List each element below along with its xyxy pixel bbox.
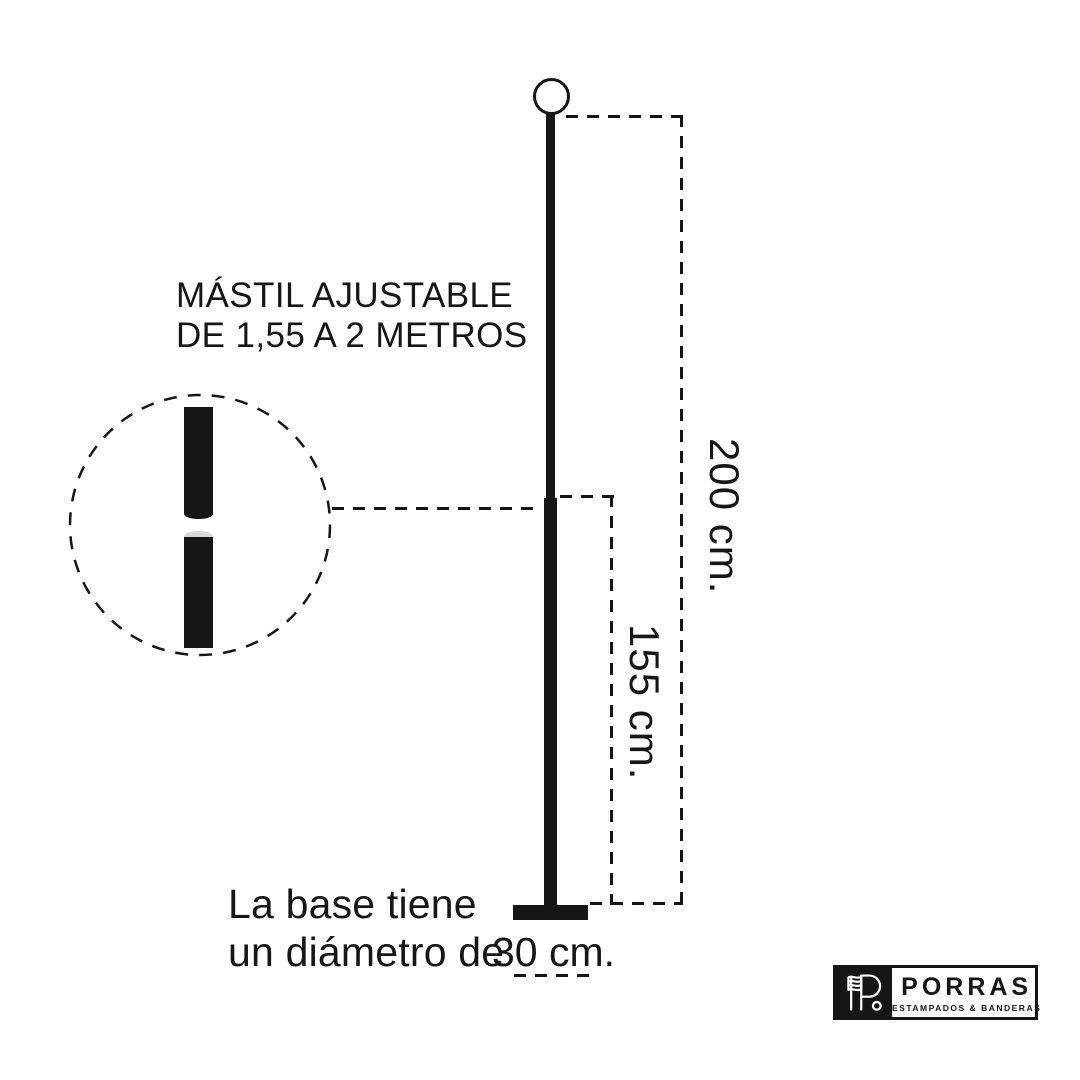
dim-200-top-line: [566, 115, 683, 118]
mast-adjustable-label-line1: MÁSTIL AJUSTABLE: [176, 276, 528, 316]
pole-lower-section: [544, 498, 557, 905]
base-caption-line2: un diámetro de: [228, 928, 504, 976]
brand-logo-mark: [836, 968, 892, 1017]
brand-name: PORRAS: [901, 975, 1032, 1000]
detail-connector-line: [332, 507, 542, 510]
brand-tagline: ESTAMPADOS & BANDERAS: [892, 1004, 1041, 1013]
mast-adjustable-label: MÁSTIL AJUSTABLE DE 1,55 A 2 METROS: [176, 276, 528, 356]
mast-adjustable-label-line2: DE 1,55 A 2 METROS: [176, 316, 528, 356]
base-diameter-dash-line: [514, 974, 591, 977]
brand-logo: PORRAS ESTAMPADOS & BANDERAS: [833, 965, 1038, 1020]
base-caption: La base tiene un diámetro de: [228, 880, 504, 976]
dim-155-label: 155 cm.: [620, 624, 668, 780]
base-caption-line1: La base tiene: [228, 880, 504, 928]
dim-200-bottom-line: [590, 902, 683, 905]
dim-200-label: 200 cm.: [700, 438, 748, 594]
detail-pole-lower-segment: [184, 537, 213, 648]
dim-155-top-line: [560, 495, 614, 498]
brand-text-block: PORRAS ESTAMPADOS & BANDERAS: [892, 968, 1041, 1017]
dim-200-vertical-line: [680, 115, 683, 905]
infographic-canvas: MÁSTIL AJUSTABLE DE 1,55 A 2 METROS 200 …: [0, 0, 1080, 1080]
porras-flag-p-icon: [842, 971, 886, 1015]
dim-155-vertical-line: [610, 495, 613, 905]
pole-base: [513, 905, 588, 920]
pole-upper-section: [546, 113, 555, 498]
pole-finial-ball: [533, 78, 570, 115]
detail-pole-upper-segment: [184, 407, 213, 519]
base-diameter-label: 30 cm.: [492, 928, 615, 976]
